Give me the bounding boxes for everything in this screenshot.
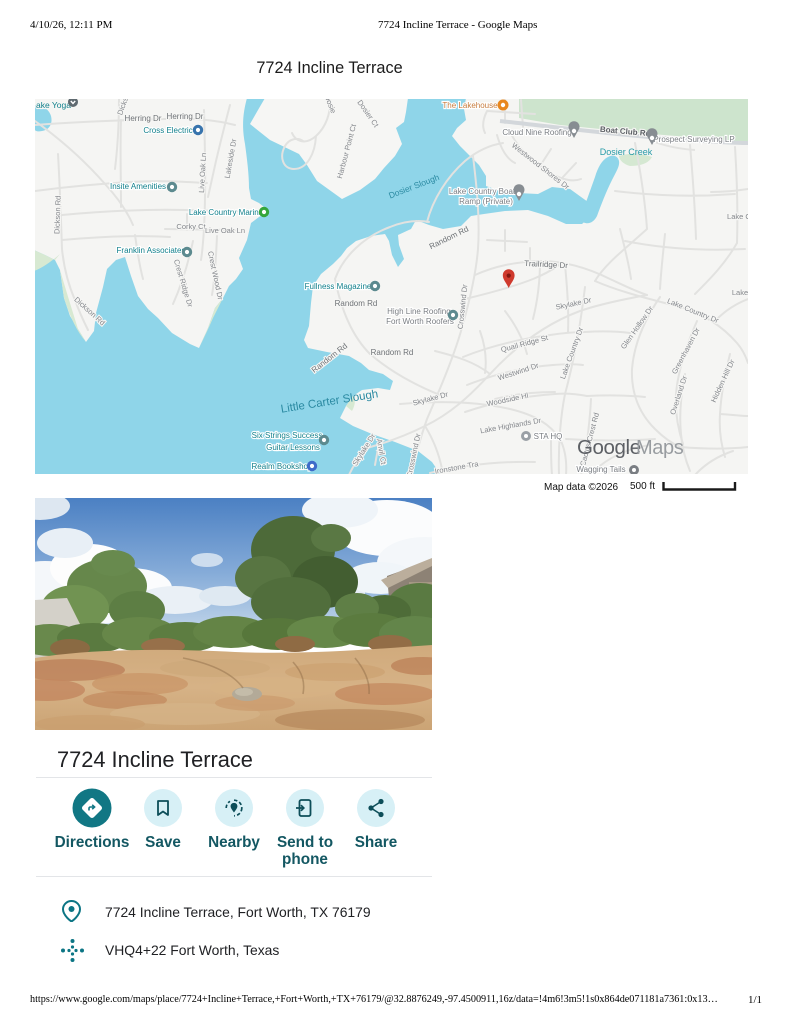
svg-text:Directions: Directions xyxy=(55,834,130,851)
svg-text:phone: phone xyxy=(282,851,328,868)
svg-text:Cross Electric: Cross Electric xyxy=(143,126,192,135)
svg-text:Fort Worth Roofers: Fort Worth Roofers xyxy=(386,317,454,326)
svg-text:Fullness Magazine: Fullness Magazine xyxy=(305,282,372,291)
svg-text:Nearby: Nearby xyxy=(208,834,260,851)
svg-text:Lake Country Marina: Lake Country Marina xyxy=(189,208,264,217)
svg-text:Dosier Creek: Dosier Creek xyxy=(600,147,653,157)
svg-text:Six Strings Success: Six Strings Success xyxy=(252,431,323,440)
svg-text:Insite Amenities: Insite Amenities xyxy=(110,182,166,191)
svg-text:Share: Share xyxy=(355,834,398,851)
svg-text:High Line Roofing,: High Line Roofing, xyxy=(387,307,453,316)
svg-text:Maps: Maps xyxy=(636,437,684,459)
svg-text:Corky Ct: Corky Ct xyxy=(176,222,206,231)
svg-text:Herring Dr: Herring Dr xyxy=(125,114,162,123)
svg-text:Lake: Lake xyxy=(732,288,748,297)
svg-text:Realm Bookshop: Realm Bookshop xyxy=(252,462,313,471)
svg-text:The Lakehouse: The Lakehouse xyxy=(442,101,498,110)
svg-text:Cloud Nine Roofing: Cloud Nine Roofing xyxy=(502,128,571,137)
svg-text:ake Yoga: ake Yoga xyxy=(36,100,71,110)
svg-text:STA HQ: STA HQ xyxy=(534,432,563,441)
svg-text:Ramp (Private): Ramp (Private) xyxy=(459,197,513,206)
svg-text:Live Oak Ln: Live Oak Ln xyxy=(205,226,245,235)
svg-text:Save: Save xyxy=(145,834,181,851)
svg-text:Prospect Surveying LP: Prospect Surveying LP xyxy=(653,135,734,144)
svg-text:Google: Google xyxy=(577,436,641,459)
svg-text:Send to: Send to xyxy=(277,834,333,851)
svg-text:Lake Country Boat: Lake Country Boat xyxy=(449,187,516,196)
svg-text:Herring Dr: Herring Dr xyxy=(167,112,204,121)
svg-text:Wagging Tails: Wagging Tails xyxy=(576,465,625,474)
svg-text:Dickson Rd: Dickson Rd xyxy=(52,196,62,235)
svg-text:Random Rd: Random Rd xyxy=(335,299,378,308)
svg-text:Random Rd: Random Rd xyxy=(371,348,414,357)
svg-text:Guitar Lessons: Guitar Lessons xyxy=(266,443,320,452)
svg-text:Lake Co: Lake Co xyxy=(727,212,748,221)
svg-text:Franklin Associates: Franklin Associates xyxy=(117,246,186,255)
